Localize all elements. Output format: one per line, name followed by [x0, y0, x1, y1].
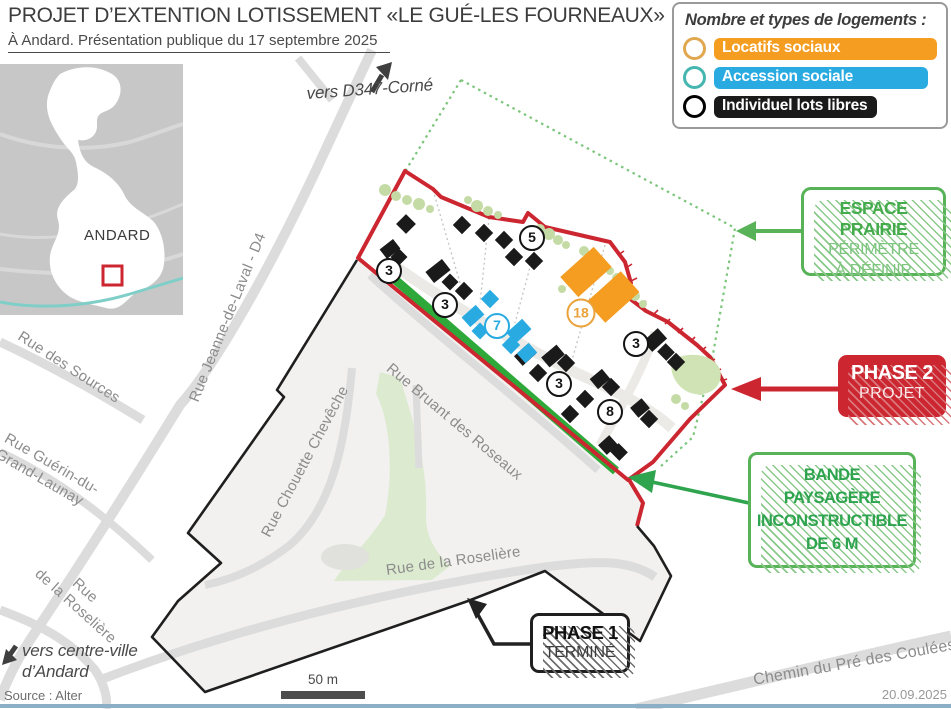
legend-label-individuel: Individuel lots libres: [714, 96, 877, 118]
lot-count-badge: 3: [546, 371, 572, 397]
lot-count-badge: 3: [623, 331, 649, 357]
legend-row-individuel: Individuel lots libres: [683, 95, 937, 118]
legend-row-accession: Accession sociale: [683, 66, 937, 89]
location-inset-map: ANDARD: [0, 64, 183, 315]
page-subtitle: À Andard. Présentation publique du 17 se…: [8, 32, 390, 53]
scale-bar: [281, 691, 365, 699]
legend-title: Nombre et types de logements :: [685, 11, 937, 30]
individuel-circle-icon: [683, 95, 706, 118]
legend: Nombre et types de logements : Locatifs …: [672, 2, 948, 129]
page-title: PROJET D’EXTENTION LOTISSEMENT «LE GUÉ-L…: [8, 4, 665, 28]
lot-count-badge: 3: [376, 258, 402, 284]
legend-label-locatifs: Locatifs sociaux: [714, 38, 937, 60]
source-credit: Source : Alter: [4, 688, 82, 703]
date-stamp: 20.09.2025: [882, 687, 947, 702]
legend-row-locatifs: Locatifs sociaux: [683, 37, 937, 60]
callout-bande-paysagere: BANDE PAYSAGÈRE INCONSTRUCTIBLE DE 6 M: [748, 452, 916, 568]
site-plan-poster: ANDARD PROJET D’EXTENTION LOTISSEMENT «L…: [0, 0, 951, 709]
lot-count-badge: 7: [484, 313, 510, 339]
inset-commune-label: ANDARD: [84, 227, 150, 244]
lot-count-badge: 8: [597, 399, 623, 425]
lot-count-badge: 5: [519, 225, 545, 251]
callout-phase2: PHASE 2 PROJET: [838, 355, 946, 417]
scale-label: 50 m: [281, 672, 365, 687]
callout-phase1: PHASE 1 TERMINÉ: [530, 613, 630, 673]
accession-circle-icon: [683, 66, 706, 89]
header: PROJET D’EXTENTION LOTISSEMENT «LE GUÉ-L…: [8, 4, 665, 53]
callout-espace-prairie: ESPACE PRAIRIE PÉRIMÈTRE À DÉFINIR: [801, 187, 946, 276]
locatif-circle-icon: [683, 37, 706, 60]
lot-count-badge: 3: [432, 292, 458, 318]
legend-label-accession: Accession sociale: [714, 67, 928, 89]
lot-count-badge: 18: [567, 299, 596, 328]
